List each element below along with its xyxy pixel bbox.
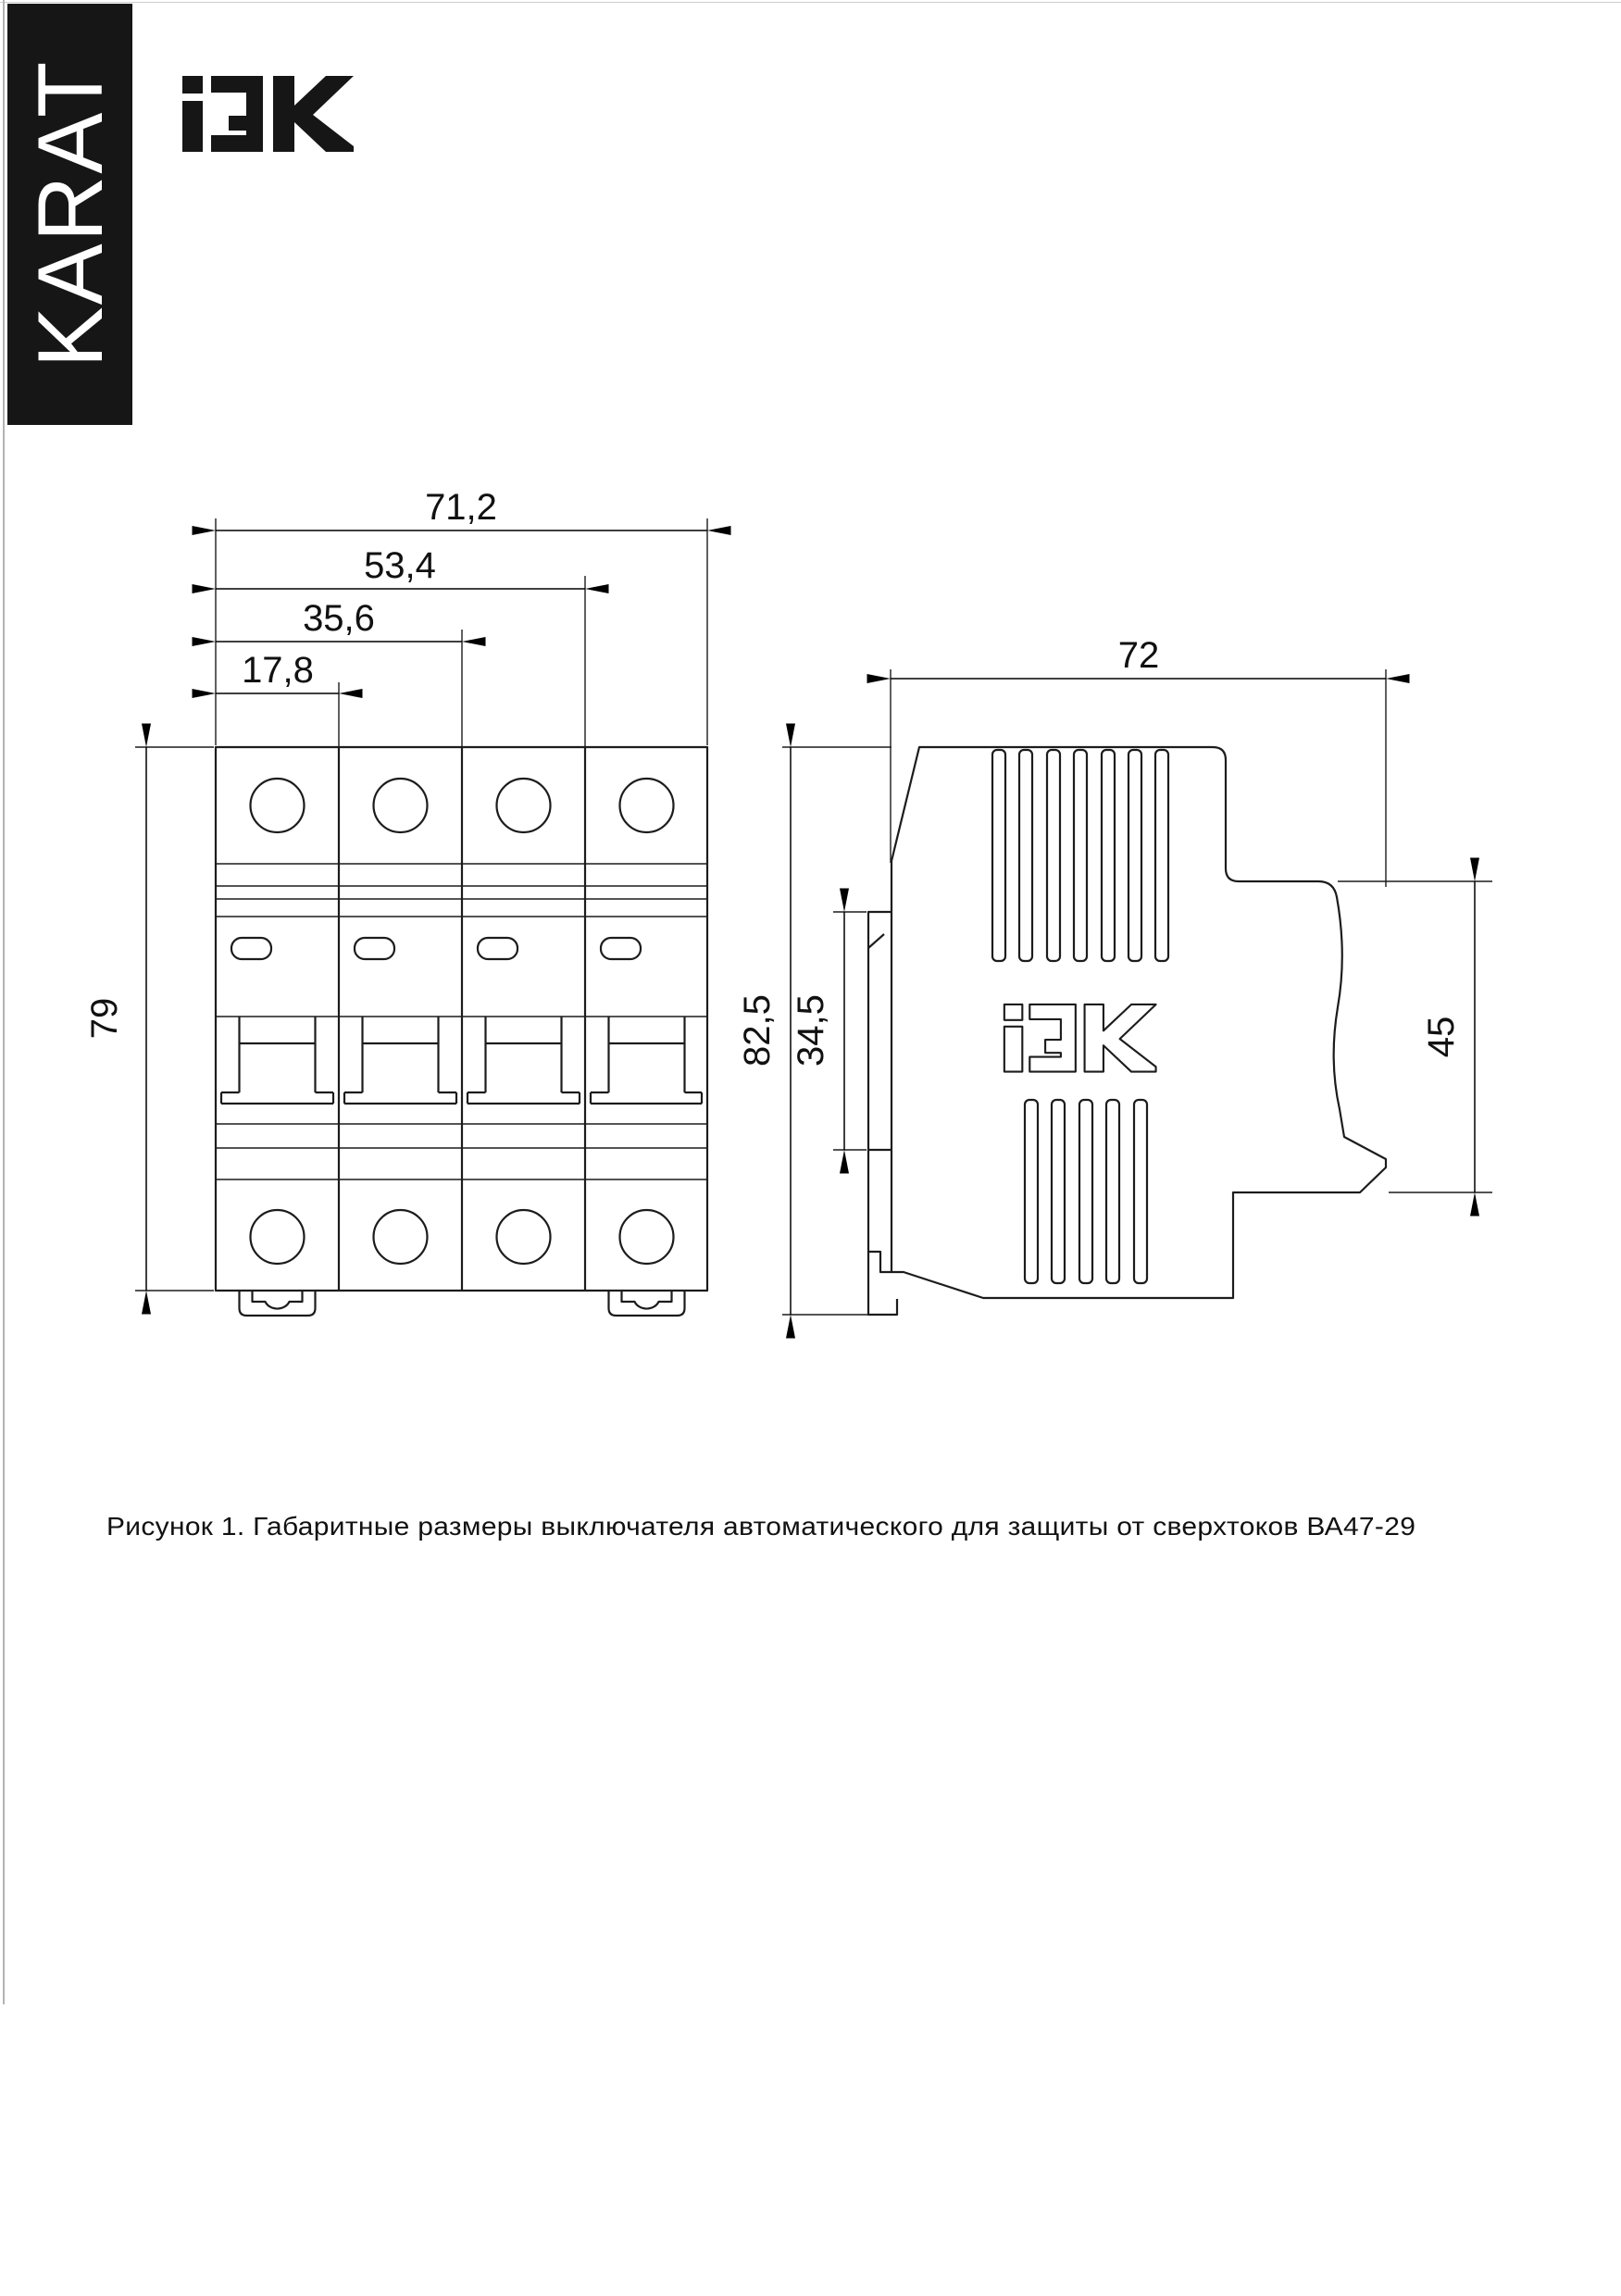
side-dimension-lines — [791, 679, 1475, 1315]
dim-label-side-width: 72 — [1118, 635, 1160, 676]
dim-label-side-rail-height: 34,5 — [791, 994, 831, 1067]
iek-logo-embossed — [1004, 1004, 1156, 1072]
page: KARAT IEK — [0, 0, 1621, 2296]
dim-label-front-height: 79 — [84, 998, 125, 1040]
side-body-outline — [892, 747, 1386, 1298]
front-label-slots — [231, 938, 641, 959]
dim-label-front-width-3mod: 53,4 — [364, 545, 436, 586]
side-view-drawing: 72 82,5 34,5 45 — [737, 635, 1492, 1315]
dimension-drawing: IEK — [0, 0, 1621, 2296]
dim-label-front-width-1mod: 17,8 — [242, 650, 314, 691]
side-rail-extension-ticks — [833, 912, 867, 1150]
side-vent-slots-upper — [992, 750, 1168, 961]
side-din-clamp — [868, 912, 897, 1315]
iek-logo — [182, 76, 354, 152]
dim-label-front-width-2mod: 35,6 — [303, 598, 375, 639]
dim-label-front-width-total: 71,2 — [425, 487, 497, 528]
side-vent-slots-lower — [1025, 1100, 1147, 1283]
figure-caption: Рисунок 1. Габаритные размеры выключател… — [106, 1512, 1415, 1541]
front-module-dividers — [339, 747, 585, 1291]
side-width-extension-lines — [891, 669, 1386, 887]
front-din-clip-feet — [240, 1291, 685, 1316]
front-dimension-lines — [146, 530, 707, 1291]
front-view-drawing: 71,2 53,4 35,6 17,8 79 — [84, 487, 707, 1316]
dim-label-side-front-height: 45 — [1421, 1017, 1462, 1058]
dim-label-side-height-total: 82,5 — [737, 994, 778, 1067]
